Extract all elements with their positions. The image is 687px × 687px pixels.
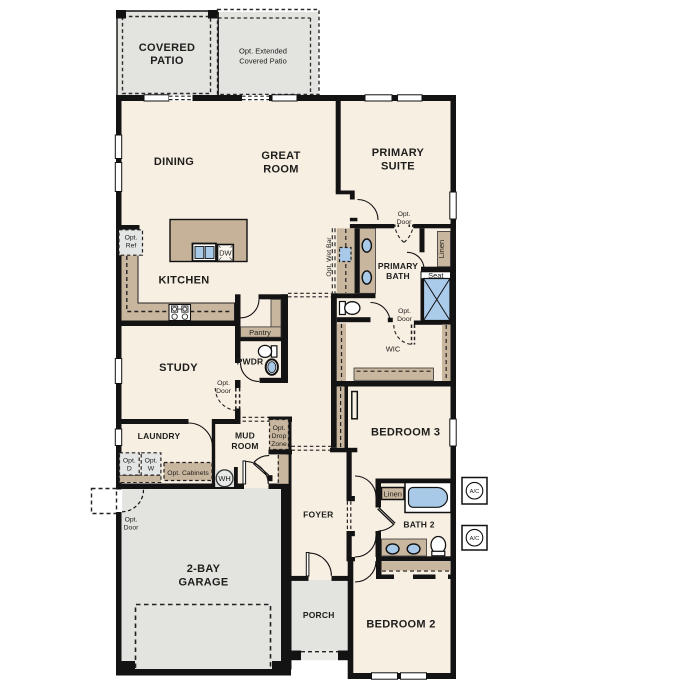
svg-text:Opt.: Opt. [145,457,158,464]
svg-text:GARAGE: GARAGE [178,577,228,589]
svg-text:BEDROOM 2: BEDROOM 2 [366,619,435,631]
svg-text:Zone: Zone [271,441,287,448]
svg-text:Door: Door [397,219,412,226]
svg-text:FOYER: FOYER [303,510,333,520]
svg-text:COVERED: COVERED [139,42,196,54]
svg-text:2-BAY: 2-BAY [187,563,221,575]
svg-text:ROOM: ROOM [231,441,258,451]
svg-text:D: D [127,465,132,472]
svg-text:Door: Door [216,388,231,395]
svg-text:A/C: A/C [470,536,480,542]
svg-text:WH: WH [218,474,231,483]
svg-text:Opt.: Opt. [125,235,138,242]
svg-text:Opt. Wet Bar: Opt. Wet Bar [326,237,333,277]
svg-text:A/C: A/C [470,489,480,495]
svg-text:Opt. Cabinets: Opt. Cabinets [167,470,209,477]
svg-text:Ref: Ref [126,243,137,250]
svg-text:Opt.: Opt. [273,425,286,432]
svg-text:KITCHEN: KITCHEN [159,275,210,287]
svg-text:W: W [148,465,155,472]
svg-text:ROOM: ROOM [263,164,298,176]
svg-text:STUDY: STUDY [159,362,198,374]
svg-text:PRIMARY: PRIMARY [372,147,425,159]
svg-text:BEDROOM 3: BEDROOM 3 [371,427,440,439]
svg-text:Opt.: Opt. [398,211,411,218]
svg-text:Door: Door [397,316,412,323]
svg-text:PWDR: PWDR [237,357,264,367]
svg-text:Linen: Linen [437,240,446,258]
svg-text:BATH 2: BATH 2 [403,520,434,530]
svg-text:Door: Door [124,525,139,532]
svg-text:Opt. Extended: Opt. Extended [239,47,287,56]
svg-text:MUD: MUD [235,431,255,441]
svg-text:Covered Patio: Covered Patio [239,57,287,66]
svg-text:SUITE: SUITE [381,161,415,173]
svg-text:BATH: BATH [386,271,410,281]
svg-text:Opt.: Opt. [398,308,411,315]
svg-text:Opt.: Opt. [217,380,230,387]
svg-text:Pantry: Pantry [249,328,271,337]
svg-text:LAUNDRY: LAUNDRY [138,431,181,441]
svg-text:DINING: DINING [154,156,194,168]
svg-text:Linen: Linen [384,489,402,498]
svg-text:WIC: WIC [386,345,401,354]
svg-text:DW: DW [219,249,232,258]
svg-text:Opt.: Opt. [125,517,138,524]
svg-text:Opt.: Opt. [123,457,136,464]
svg-text:PATIO: PATIO [150,55,184,67]
svg-text:PORCH: PORCH [303,610,335,620]
svg-text:GREAT: GREAT [261,150,300,162]
svg-text:Drop: Drop [272,433,287,440]
svg-text:PRIMARY: PRIMARY [378,261,418,271]
